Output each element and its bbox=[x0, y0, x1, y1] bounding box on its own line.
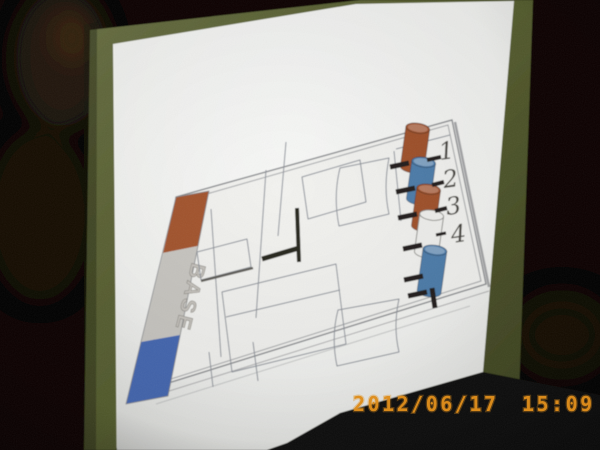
camera-timestamp-text: 2012/06/17 15:09 bbox=[353, 392, 595, 416]
film-grain-overlay bbox=[0, 0, 600, 450]
photo-of-projected-slide: BASE bbox=[0, 0, 600, 450]
camera-timestamp: 2012/06/17 15:09 2012/06/17 15:09 bbox=[353, 392, 595, 416]
